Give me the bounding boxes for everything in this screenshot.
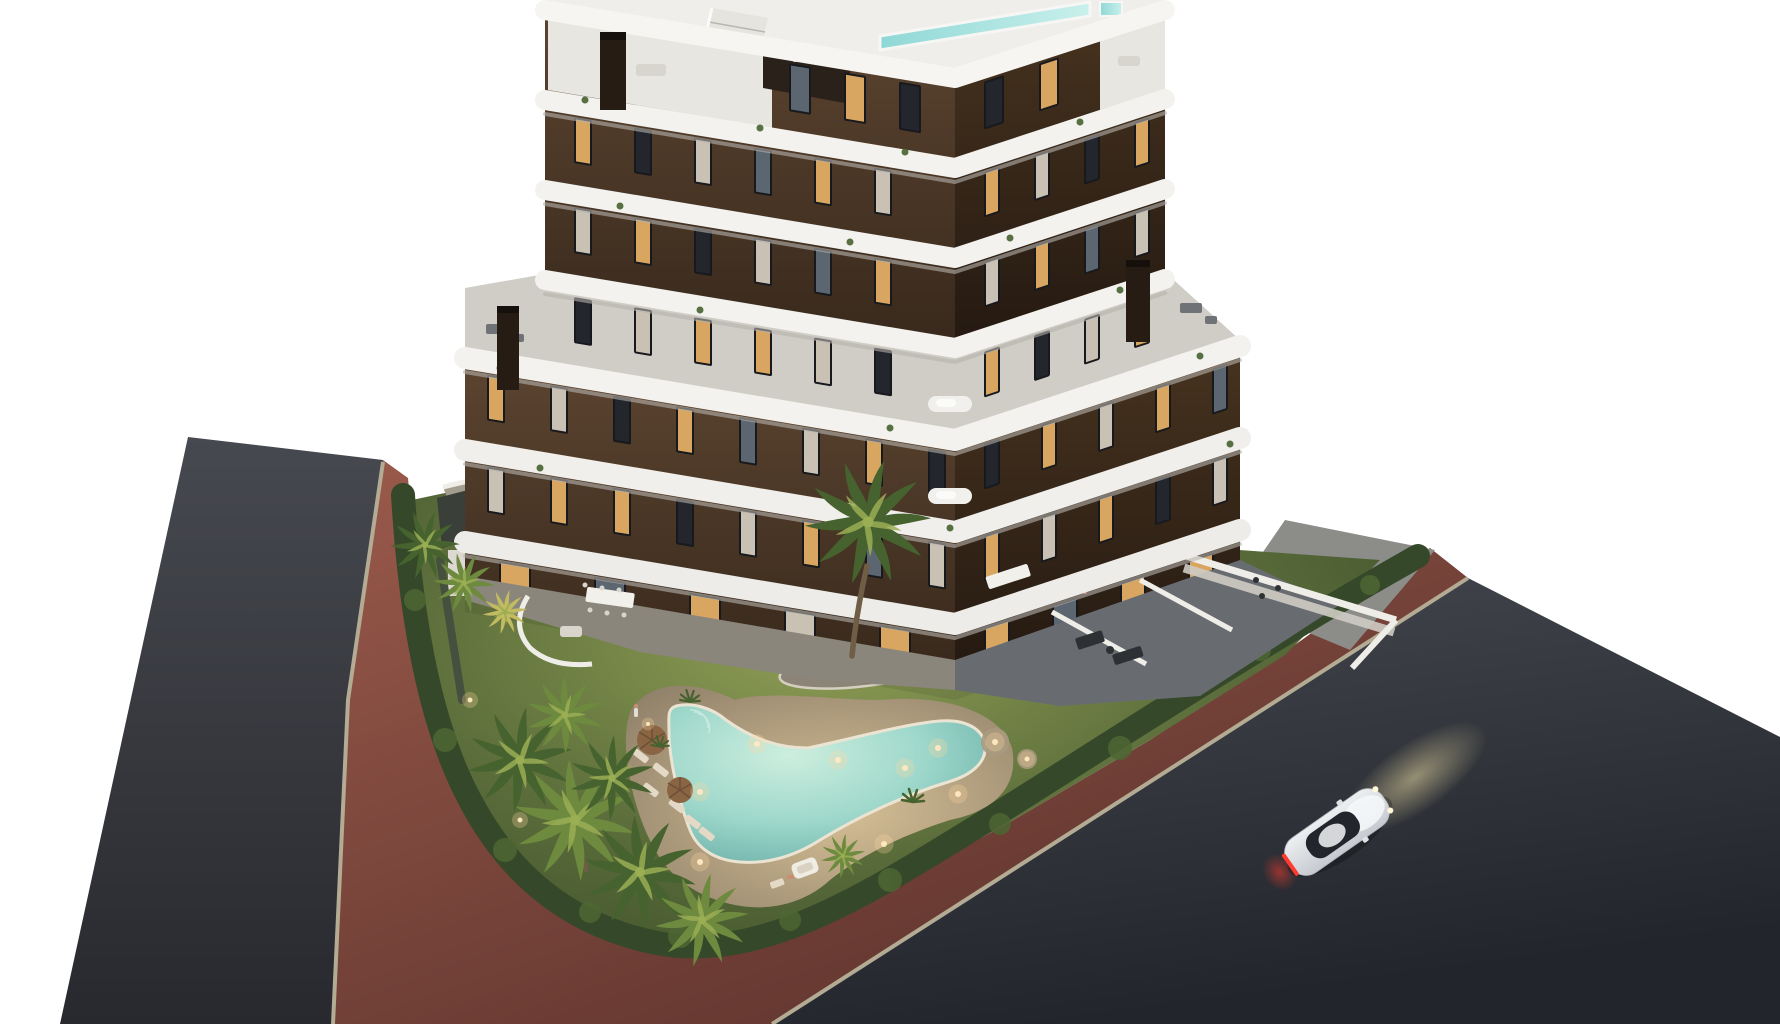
window-lit — [875, 259, 891, 306]
window-glass — [1213, 365, 1227, 414]
garden-light — [902, 765, 908, 771]
window-lit — [677, 407, 693, 454]
window-lit — [551, 478, 567, 525]
window-curtain — [740, 510, 756, 557]
garden-light — [881, 841, 887, 847]
window-glass — [755, 148, 771, 195]
window-lit — [695, 318, 711, 365]
person-on-cabana — [787, 875, 794, 879]
window-dark — [1085, 135, 1099, 184]
window-lit — [755, 328, 771, 375]
window-lit — [614, 489, 630, 536]
garden-light — [646, 722, 650, 726]
window-dark — [695, 228, 711, 275]
sofa-left-terrace — [560, 626, 582, 637]
window-curtain — [803, 429, 819, 476]
garden-light — [955, 791, 961, 797]
window-curtain — [1042, 513, 1056, 562]
window-dark — [1156, 476, 1170, 525]
window-glass — [815, 249, 831, 296]
window-dark — [985, 76, 1003, 128]
window-lit — [985, 168, 999, 217]
window-dark — [677, 499, 693, 546]
window-glass — [1085, 225, 1099, 274]
garden-light — [518, 818, 523, 823]
window-curtain — [575, 208, 591, 255]
window-lit — [635, 218, 651, 265]
garden-light — [468, 698, 473, 703]
window-dark — [575, 298, 591, 345]
window-dark — [875, 349, 891, 396]
window-curtain — [875, 169, 891, 216]
window-lit — [985, 532, 999, 581]
scene-svg — [0, 0, 1780, 1024]
window-lit — [1156, 384, 1170, 433]
window-dark — [900, 83, 920, 132]
window-lit — [1099, 494, 1113, 543]
window-curtain — [1135, 209, 1149, 258]
render-canvas — [0, 0, 1780, 1024]
rooftop-jacuzzi — [1100, 2, 1122, 16]
window-glass — [740, 418, 756, 465]
window-curtain — [1213, 457, 1227, 506]
window-curtain — [1085, 315, 1099, 364]
window-dark — [614, 397, 630, 444]
window-lit — [1042, 421, 1056, 470]
window-curtain — [488, 468, 504, 515]
window-lit — [1135, 119, 1149, 168]
garden-light — [935, 745, 941, 751]
window-lit — [1040, 58, 1058, 110]
window-lit — [985, 348, 999, 397]
window-curtain — [815, 339, 831, 386]
window-curtain — [985, 258, 999, 307]
window-lit — [1035, 241, 1049, 290]
window-curtain — [695, 138, 711, 185]
garden-light — [754, 741, 760, 747]
window-lit — [575, 118, 591, 165]
window-curtain — [929, 542, 945, 589]
window-dark — [985, 440, 999, 489]
garden-light — [697, 859, 703, 865]
window-lit — [845, 74, 865, 123]
window-dark — [635, 128, 651, 175]
person-by-pool — [634, 704, 638, 717]
garden-light — [835, 757, 841, 763]
garden-light — [697, 789, 703, 795]
garden-light — [1025, 757, 1030, 762]
window-curtain — [1035, 151, 1049, 200]
window-lit — [815, 159, 831, 206]
window-curtain — [755, 238, 771, 285]
window-curtain — [635, 308, 651, 355]
garden-light — [992, 739, 998, 745]
window-glass — [790, 64, 810, 113]
window-curtain — [1099, 402, 1113, 451]
window-dark — [1035, 331, 1049, 380]
window-curtain — [551, 386, 567, 433]
